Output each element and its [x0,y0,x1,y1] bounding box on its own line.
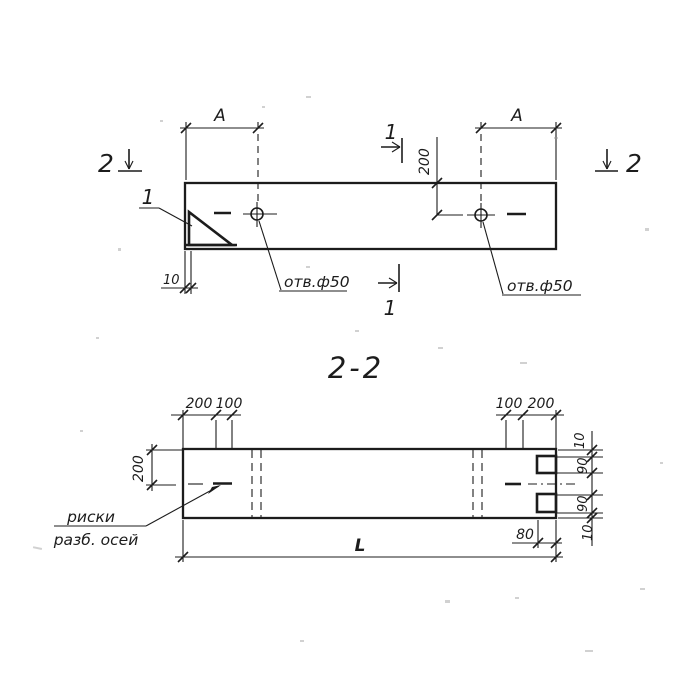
hole-note-left: отв.ф50 [259,221,350,291]
axis-marks-section [188,484,577,485]
dim-10-plan-label: 10 [163,273,180,288]
dim-right-10-top: 10 [573,432,588,449]
dims-top-left: 200 100 [171,396,242,449]
dim-length-l: L [175,520,563,562]
dim-a-right-label: А [510,106,523,126]
section-1-bottom-label: 1 [384,296,397,320]
section-mark-2-left: 2 [98,149,142,178]
notch-bottom [537,494,556,512]
section-mark-1-bottom: 1 [378,264,399,320]
dim-80: 80 [512,520,562,548]
hole-note-right-label: отв.ф50 [507,277,573,295]
dim-left-200-label: 200 [131,455,147,482]
dim-200-plan: 200 [417,137,463,220]
dim-right-10-bottom: 10 [581,524,596,541]
section-1-top-label: 1 [385,120,398,144]
hole-note-right: отв.ф50 [483,222,581,295]
notch-top [537,456,556,473]
section-view: 200 100 100 200 200 [53,396,603,562]
axis-note-line2: разб. осей [53,531,139,549]
section-2-right-label: 2 [626,149,642,178]
drawing-sheet: А А 200 1 [0,0,700,700]
section-2-left-label: 2 [98,149,114,178]
dim-a-left: А [180,106,264,203]
plan-view: А А 200 1 [98,106,642,320]
dims-right-edge: 10 90 90 10 [557,431,603,546]
dim-a-right: А [475,106,562,204]
dims-top-right: 100 200 [496,396,564,449]
dim-left-200: 200 [131,444,182,491]
beam-outline-plan [185,183,556,249]
hidden-hole-lines [252,450,482,517]
beam-outline-section [183,449,556,518]
hole-note-left-label: отв.ф50 [284,273,350,291]
dim-200-plan-label: 200 [417,148,433,175]
section-mark-2-right: 2 [595,149,642,178]
dim-tr-200: 200 [528,396,555,412]
dim-tl-100: 100 [216,396,243,412]
dim-a-left-label: А [213,106,226,126]
axis-note-line1: риски [66,508,115,526]
dim-80-label: 80 [516,527,534,543]
dim-right-90-top: 90 [576,457,591,474]
dim-length-label: L [355,536,366,556]
section-title: 2-2 [328,351,384,385]
section-mark-1-top: 1 [381,120,402,163]
hole-right [467,203,495,228]
corner-detail-triangle [186,212,237,245]
dim-right-90-bottom: 90 [576,495,591,512]
detail-1-label: 1 [142,185,155,209]
dim-10-plan: 10 [161,251,198,294]
beam-drawing-svg: А А 200 1 [0,0,700,700]
dim-tl-200: 200 [186,396,213,412]
dim-tr-100: 100 [496,396,523,412]
